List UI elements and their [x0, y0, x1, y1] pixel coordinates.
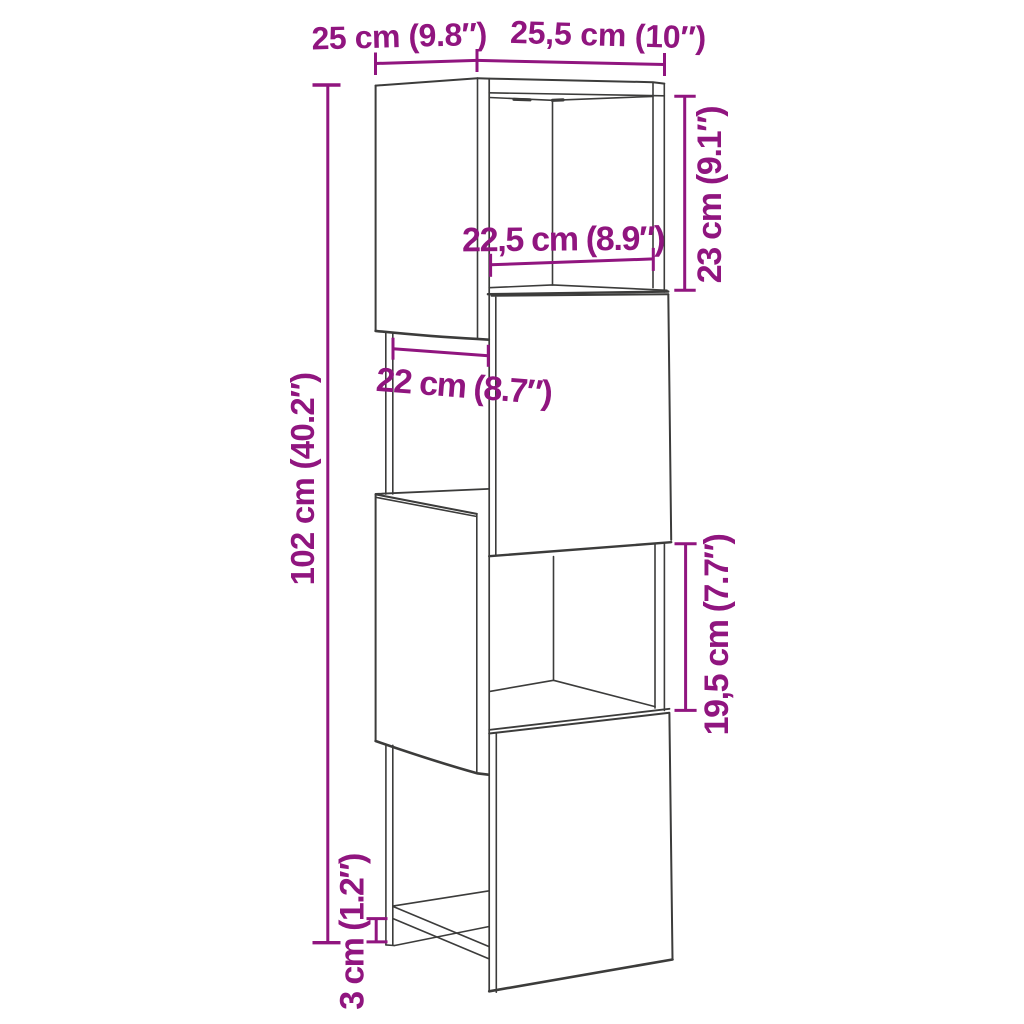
svg-text:102 cm (40.2″): 102 cm (40.2″): [284, 373, 321, 586]
svg-text:19,5 cm (7.7″): 19,5 cm (7.7″): [698, 535, 736, 736]
svg-text:3 cm (1.2″): 3 cm (1.2″): [334, 854, 372, 1010]
svg-text:25 cm (9.8″): 25 cm (9.8″): [311, 16, 487, 57]
svg-text:22,5 cm (8.9″): 22,5 cm (8.9″): [462, 220, 665, 260]
svg-text:25,5 cm (10″): 25,5 cm (10″): [510, 14, 707, 56]
svg-text:23 cm (9.1″): 23 cm (9.1″): [691, 107, 729, 283]
